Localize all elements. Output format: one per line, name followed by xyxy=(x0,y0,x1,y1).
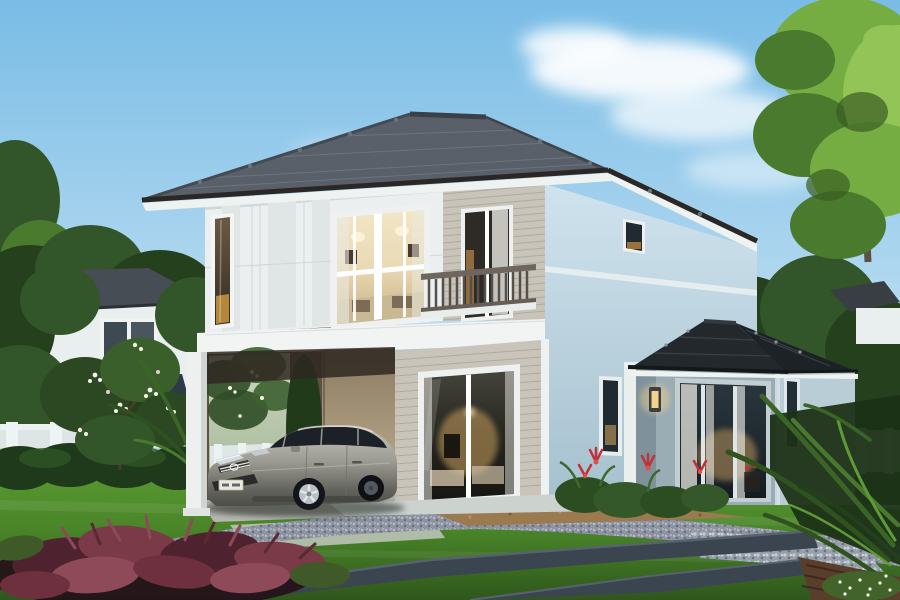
side-window-upper xyxy=(623,219,645,254)
car-wheel-front xyxy=(293,478,325,510)
car-wheel-rear xyxy=(358,475,384,501)
wall-lamp xyxy=(640,384,670,414)
car-mirror xyxy=(291,446,300,452)
picture-window xyxy=(331,204,430,330)
house-photo xyxy=(0,0,900,600)
panel-strips xyxy=(222,194,330,332)
scene-canvas xyxy=(0,0,900,600)
carport-post xyxy=(183,352,210,516)
side-window-lower xyxy=(599,376,622,456)
extension-glass-wall xyxy=(675,378,771,502)
narrow-window xyxy=(211,213,234,329)
sliding-door xyxy=(418,364,520,506)
license-plate xyxy=(219,480,243,490)
